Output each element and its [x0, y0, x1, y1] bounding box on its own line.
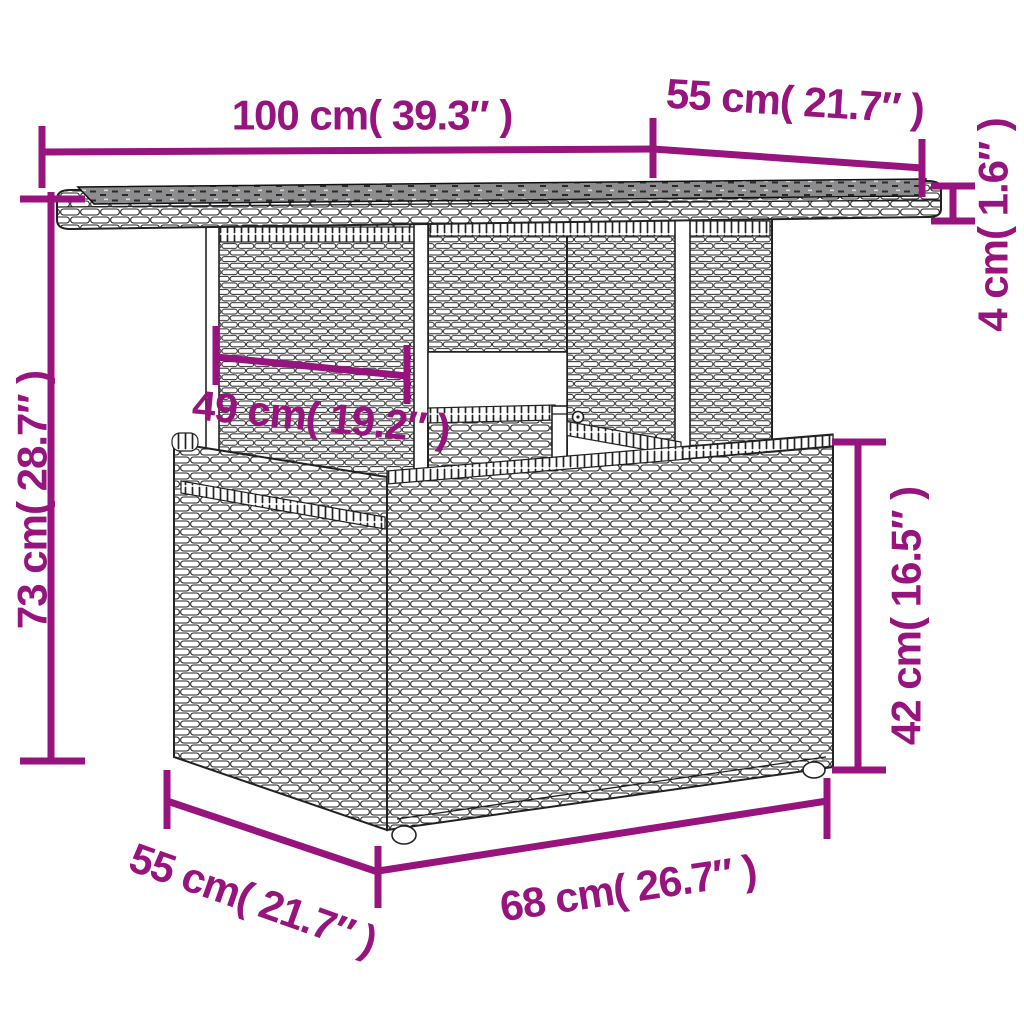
- base-corner-rail: [172, 433, 198, 451]
- tabletop: [57, 179, 941, 229]
- dim-label-overall-height: 73 cm( 28.7″ ): [9, 371, 56, 629]
- base-box: [172, 405, 833, 844]
- base-box-front-face: [387, 440, 833, 830]
- pedestal-window: [428, 352, 567, 409]
- dim-label-tabletop-width: 100 cm( 39.3″ ): [232, 92, 513, 139]
- dim-label-base-width: 68 cm( 26.7″ ): [497, 846, 759, 931]
- base-foot-right: [803, 762, 825, 778]
- base-foot-left: [392, 826, 416, 844]
- left-pedestal-braid-band: [214, 227, 427, 242]
- right-pedestal: [567, 214, 772, 452]
- dim-tabletop-thickness: 4 cm( 1.6″ ): [931, 118, 1017, 332]
- dim-label-tabletop-thickness: 4 cm( 1.6″ ): [970, 118, 1017, 332]
- dim-label-tabletop-depth: 55 cm( 21.7″ ): [665, 70, 926, 133]
- product-dimension-diagram: 100 cm( 39.3″ ) 55 cm( 21.7″ ) 4 cm( 1.6…: [0, 0, 1024, 1024]
- dim-label-base-depth: 55 cm( 21.7″ ): [123, 834, 382, 965]
- dim-label-base-height: 42 cm( 16.5″ ): [883, 487, 930, 745]
- dim-overall-height: 73 cm( 28.7″ ): [9, 192, 86, 764]
- dimension-diagram-page: 100 cm( 39.3″ ) 55 cm( 21.7″ ) 4 cm( 1.6…: [0, 0, 1024, 1024]
- dim-tabletop-width: 100 cm( 39.3″ ): [42, 92, 653, 189]
- pedestal-bridge-panel: [428, 218, 567, 352]
- dim-tabletop-depth: 55 cm( 21.7″ ): [653, 70, 925, 197]
- connector-knob-dot: [576, 415, 579, 418]
- dim-base-height: 42 cm( 16.5″ ): [832, 442, 930, 770]
- right-pedestal-pole: [675, 216, 690, 448]
